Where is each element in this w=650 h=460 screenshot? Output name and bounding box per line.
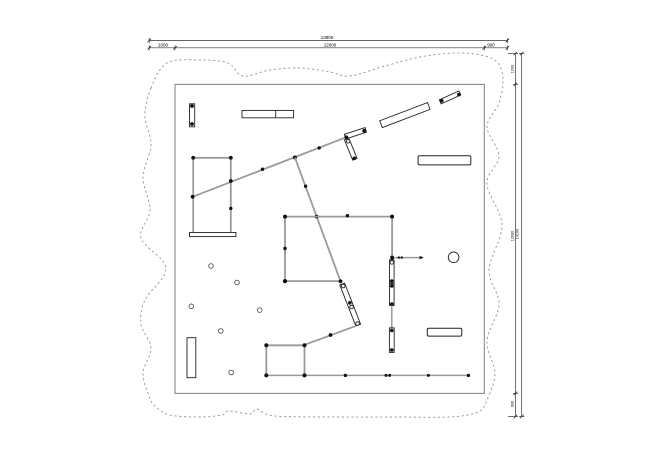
svg-text:14100: 14100 — [515, 229, 519, 240]
svg-text:900: 900 — [511, 401, 515, 407]
svg-text:13900: 13900 — [321, 35, 334, 40]
svg-text:12000: 12000 — [511, 231, 515, 242]
svg-text:12000: 12000 — [324, 42, 337, 47]
svg-text:900: 900 — [487, 42, 495, 47]
svg-text:1000: 1000 — [158, 42, 169, 47]
svg-text:1200: 1200 — [511, 65, 515, 73]
